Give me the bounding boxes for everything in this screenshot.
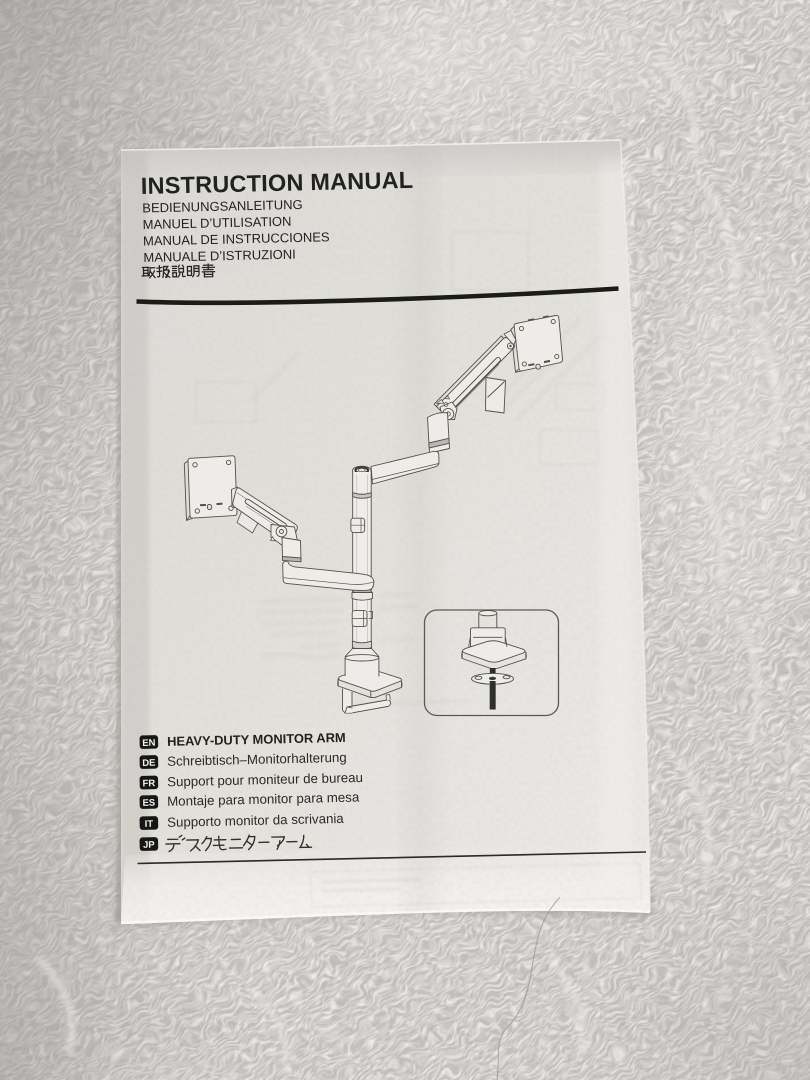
svg-text:DE: DE (142, 758, 155, 769)
svg-text:JP: JP (143, 840, 156, 851)
svg-text:EN: EN (142, 738, 156, 749)
svg-text:IT: IT (145, 819, 154, 830)
svg-text:FR: FR (142, 778, 155, 789)
svg-text:ES: ES (142, 798, 155, 809)
